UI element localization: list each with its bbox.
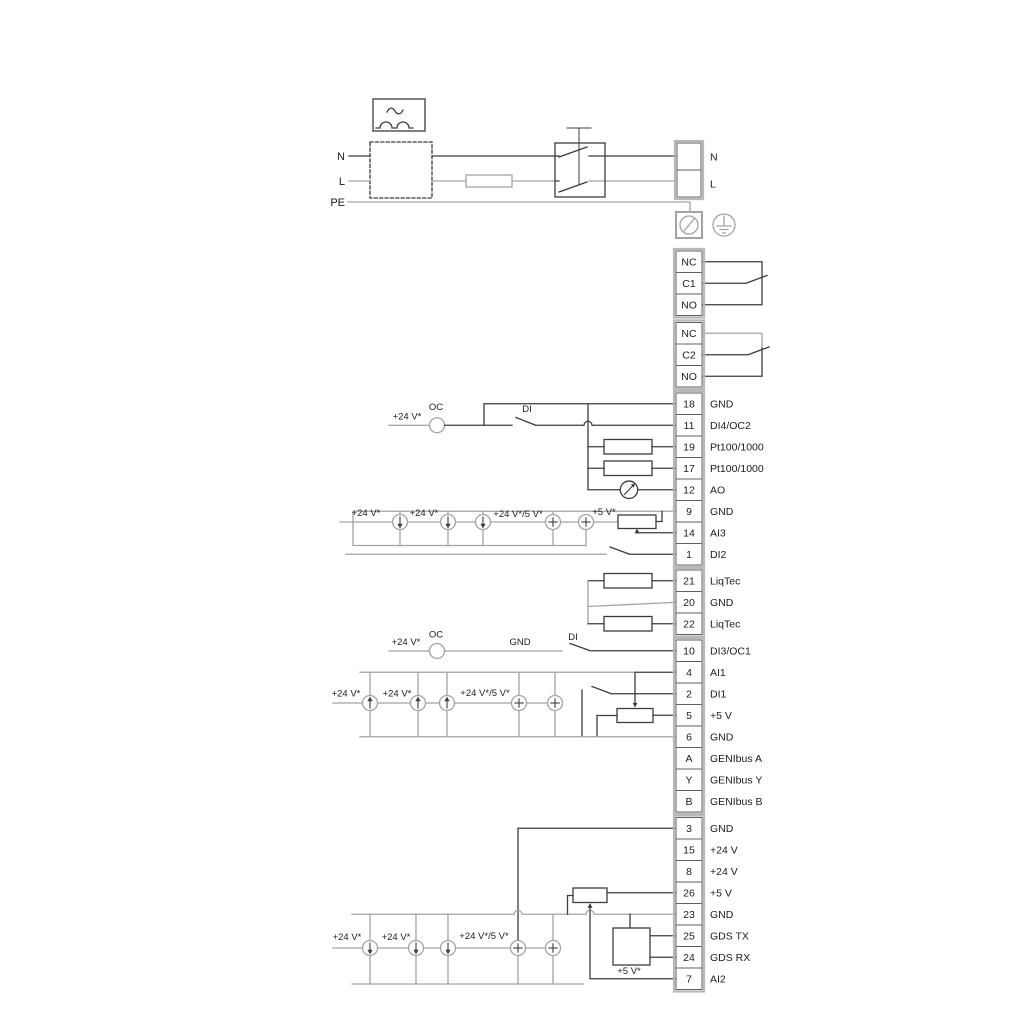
terminal-number: 26 — [683, 888, 695, 900]
terminal-label: DI2 — [710, 549, 727, 561]
di-label: DI — [522, 404, 532, 415]
potentiometer-icon — [573, 888, 607, 903]
terminal-number: 5 — [686, 710, 692, 722]
wiring-diagram: N L PE — [0, 0, 1024, 1024]
terminal-label: GDS TX — [710, 931, 749, 943]
terminal-label: GENIbus B — [710, 796, 763, 808]
terminal-label: GENIbus Y — [710, 775, 762, 787]
open-collector-icon — [430, 418, 445, 433]
terminal-label: LiqTec — [710, 576, 740, 588]
supply-label: +24 V* — [410, 508, 439, 519]
terminal-number: 22 — [683, 619, 695, 631]
terminal-label: GND — [710, 597, 734, 609]
terminal-label: DI4/OC2 — [710, 420, 751, 432]
terminal-label: GDS RX — [710, 952, 750, 964]
terminal-label: GND — [710, 506, 734, 518]
terminal-label: Pt100/1000 — [710, 463, 764, 475]
terminal-number: NO — [681, 371, 697, 383]
pt100-resistor-icon — [604, 440, 652, 455]
terminal-cell — [677, 143, 701, 170]
supply-label: +24 V* — [333, 932, 362, 943]
terminal-number: Y — [685, 775, 692, 787]
terminal-number: A — [685, 753, 692, 765]
terminal-label: GND — [710, 909, 734, 921]
gds-sensor-box-icon — [613, 928, 650, 965]
terminal-number: NC — [681, 257, 697, 269]
terminal-number: 3 — [686, 823, 692, 835]
terminal-label: GND — [710, 732, 734, 744]
supply-label: +24 V* — [382, 932, 411, 943]
terminal-number: B — [685, 796, 692, 808]
label-l-left: L — [339, 176, 345, 188]
label-n-left: N — [337, 151, 345, 163]
relay2-terminal-block: NCC2NO — [674, 321, 704, 390]
terminal-label: DI1 — [710, 689, 727, 701]
potentiometer-icon — [617, 709, 653, 723]
terminal-label: DI3/OC1 — [710, 646, 751, 658]
terminal-number: 1 — [686, 549, 692, 561]
supply-label: +24 V* — [352, 508, 381, 519]
terminal-number: 19 — [683, 442, 695, 454]
gnd-label: GND — [509, 637, 530, 648]
terminal-label: AI2 — [710, 974, 726, 986]
terminal-number: 10 — [683, 646, 695, 658]
terminal-number: 6 — [686, 732, 692, 744]
supply-label: +24 V*/5 V* — [493, 509, 543, 520]
supply-label: +5 V* — [592, 507, 616, 518]
liqtec-sensor-icon — [604, 617, 652, 632]
label-pe-left: PE — [330, 197, 345, 209]
supply-label: +5 V* — [617, 966, 641, 977]
terminal-number: 23 — [683, 909, 695, 921]
terminal-number: 25 — [683, 931, 695, 943]
pt100-resistor-icon — [604, 461, 652, 476]
terminal-number: 24 — [683, 952, 695, 964]
terminal-number: 21 — [683, 576, 695, 588]
terminal-label: N — [710, 151, 718, 163]
terminal-number: 11 — [684, 420, 695, 432]
supply-label: +24 V* — [383, 689, 412, 700]
terminal-label: +24 V — [710, 866, 738, 878]
wiring-diagram-page: N L PE — [0, 0, 1024, 1024]
terminal-number: 2 — [686, 689, 692, 701]
di-label: DI — [568, 632, 578, 643]
terminal-number: 18 — [683, 399, 695, 411]
terminal-number: C2 — [682, 350, 696, 362]
terminal-label: GND — [710, 823, 734, 835]
terminal-label: L — [710, 178, 716, 190]
terminal-label: GENIbus A — [710, 753, 762, 765]
fuse-icon — [466, 175, 512, 187]
terminal-number: NO — [681, 300, 697, 312]
terminal-number: 17 — [683, 463, 695, 475]
terminal-number: 14 — [683, 528, 695, 540]
supply-label: +24 V*/5 V* — [459, 931, 509, 942]
liqtec-sensor-icon — [604, 574, 652, 589]
terminal-number: 4 — [686, 667, 692, 679]
screw-terminal-icon — [676, 212, 702, 238]
oc-label: OC — [429, 630, 443, 641]
terminal-label: +24 V — [710, 845, 738, 857]
terminal-label: Pt100/1000 — [710, 442, 764, 454]
supply-label: +24 V* — [393, 412, 422, 423]
earth-ground-icon — [713, 214, 735, 236]
terminal-number: 15 — [683, 845, 695, 857]
terminal-label: AI1 — [710, 667, 726, 679]
terminal-number: 9 — [686, 506, 692, 518]
terminal-label: GND — [710, 399, 734, 411]
terminal-label: AI3 — [710, 528, 726, 540]
terminal-number: C1 — [682, 278, 696, 290]
terminal-label: +5 V — [710, 710, 732, 722]
open-collector-icon — [430, 644, 445, 659]
terminal-cell — [677, 170, 701, 197]
terminal-number: 7 — [686, 974, 692, 986]
supply-label: +24 V* — [332, 689, 361, 700]
terminal-number: 20 — [683, 597, 695, 609]
terminal-label: +5 V — [710, 888, 732, 900]
oc-label: OC — [429, 402, 443, 413]
terminal-number: 12 — [683, 485, 695, 497]
terminal-number: 8 — [686, 866, 692, 878]
potentiometer-icon — [618, 515, 656, 529]
terminal-label: LiqTec — [710, 619, 740, 631]
terminal-label: AO — [710, 485, 725, 497]
supply-label: +24 V*/5 V* — [460, 688, 510, 699]
supply-label: +24 V* — [392, 637, 421, 648]
terminal-number: NC — [681, 328, 697, 340]
relay1-terminal-block: NCC1NO — [674, 249, 704, 318]
